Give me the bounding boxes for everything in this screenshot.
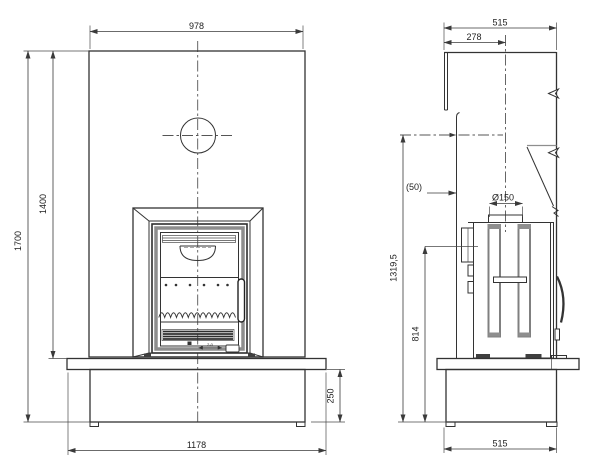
bench-slab-front bbox=[67, 359, 326, 370]
dim-front-height-total: 1700 bbox=[13, 231, 23, 251]
door-latch bbox=[555, 329, 560, 340]
dim-side-wall-gap: (50) bbox=[406, 182, 422, 192]
dimensions-side: 515 278 1319,5 814 (50) Ø150 515 bbox=[389, 18, 557, 454]
plinth-side bbox=[446, 370, 557, 423]
dim-side-flue-diameter: Ø150 bbox=[492, 193, 514, 203]
air-slider-plate bbox=[226, 345, 239, 352]
door-foot-left bbox=[144, 354, 151, 358]
stove-insert-side bbox=[462, 215, 564, 359]
foot-side-front bbox=[547, 422, 558, 427]
door-handle bbox=[238, 279, 245, 322]
front-view: 2-0 bbox=[67, 41, 326, 427]
datum-arrow bbox=[450, 133, 457, 137]
grate-wave-pattern bbox=[159, 313, 236, 318]
door-foot-right bbox=[248, 354, 255, 358]
hood-diagonal bbox=[527, 147, 554, 206]
drawing-svg: 2-0 bbox=[0, 0, 600, 474]
dim-front-width-base: 1178 bbox=[187, 440, 206, 450]
bench-side bbox=[437, 356, 579, 427]
door-air-vent bbox=[163, 236, 236, 243]
dim-side-height-mid: 814 bbox=[411, 326, 421, 341]
dim-side-depth-base: 515 bbox=[492, 439, 507, 449]
miter-top-left bbox=[133, 208, 149, 221]
firebox-door: 2-0 bbox=[144, 224, 255, 358]
dim-front-base-height: 250 bbox=[326, 388, 336, 403]
door-bolt-dots bbox=[165, 284, 229, 287]
channel-crossbar bbox=[494, 277, 527, 283]
dim-front-height-to-bench: 1400 bbox=[38, 194, 48, 214]
dim-front-width-top: 978 bbox=[189, 21, 204, 31]
rear-bracket bbox=[462, 228, 474, 293]
convection-channels bbox=[488, 224, 532, 337]
slider-label: 2-0 bbox=[207, 342, 214, 347]
casing-back-panel bbox=[445, 53, 460, 359]
foot-front-right bbox=[297, 422, 306, 427]
stove-foot bbox=[476, 354, 490, 359]
dim-side-height-level: 1319,5 bbox=[389, 254, 399, 282]
technical-drawing-fireplace: 2-0 bbox=[0, 0, 600, 474]
bench-slab-side bbox=[437, 359, 579, 370]
foot-side-back bbox=[446, 422, 455, 427]
hood-clip bbox=[552, 207, 559, 217]
stove-foot bbox=[526, 354, 542, 359]
miter-top-right bbox=[250, 208, 263, 221]
foot-front-left bbox=[90, 422, 99, 427]
side-view bbox=[400, 35, 579, 427]
air-control-knob bbox=[188, 342, 192, 346]
dim-side-flue-offset: 278 bbox=[466, 32, 481, 42]
dim-side-depth-top: 515 bbox=[492, 18, 507, 28]
mantel-body bbox=[89, 51, 305, 357]
door-handle-side bbox=[557, 277, 563, 323]
